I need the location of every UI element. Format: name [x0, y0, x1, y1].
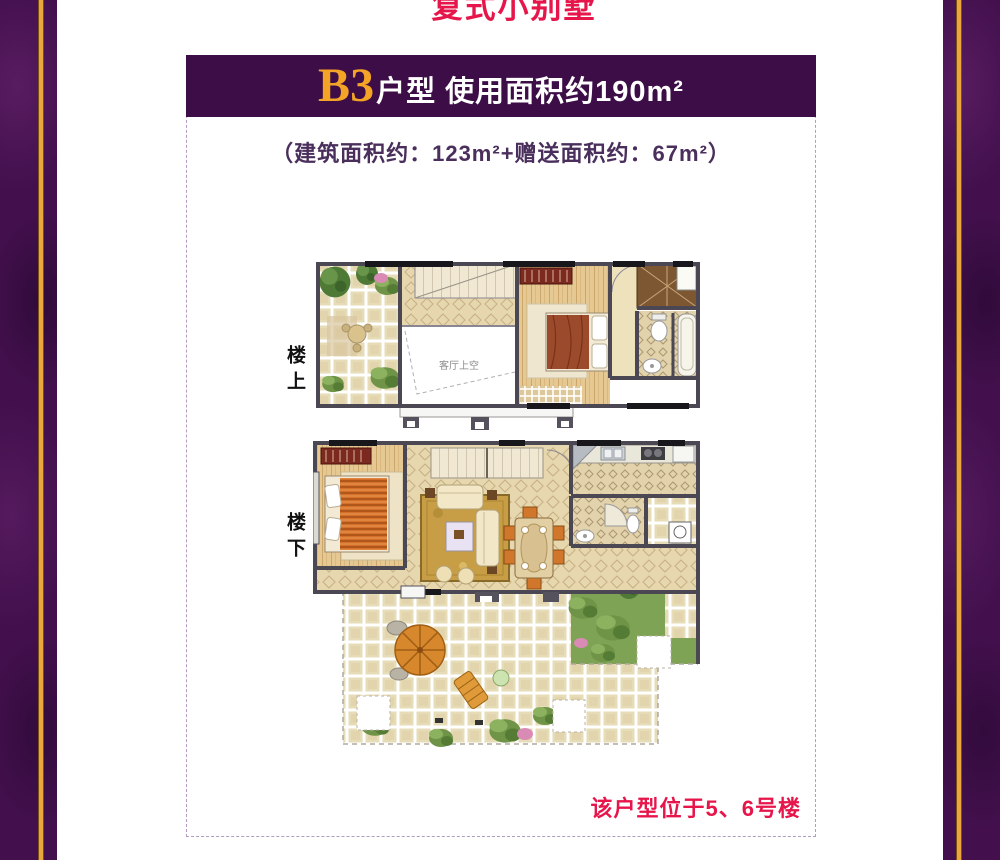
toilet-icon — [651, 321, 667, 341]
unit-header-bar: B3 户型 使用面积约190m² — [186, 55, 816, 117]
unit-code: B3 — [318, 55, 374, 117]
unit-info-panel: B3 户型 使用面积约190m² （建筑面积约：123m²+赠送面积约：67m²… — [186, 55, 816, 837]
fridge-icon — [673, 446, 694, 462]
lower-bed — [325, 476, 389, 552]
lower-bathroom — [573, 498, 643, 546]
sofa-icon — [476, 510, 499, 566]
umbrella-icon — [395, 625, 445, 675]
gold-stripe-right — [956, 0, 962, 860]
area-breakdown: （建筑面积约：123m²+赠送面积约：67m²） — [187, 136, 815, 168]
lower-floor-label: 楼下 — [281, 512, 308, 564]
upper-stair-hall — [400, 264, 517, 326]
void-label: 客厅上空 — [439, 359, 479, 372]
upper-bay-window-rail — [400, 406, 573, 430]
living-room — [421, 485, 509, 584]
building-location-note: 该户型位于5、6号楼 — [591, 791, 801, 823]
lower-floor-plan — [313, 438, 703, 768]
upper-floor-plan: 客厅上空 — [315, 256, 700, 436]
upper-bed — [546, 313, 609, 371]
upper-garden-terrace — [318, 263, 400, 406]
upper-bathroom — [637, 311, 698, 378]
lower-stairs — [431, 448, 543, 478]
upper-closet — [637, 264, 698, 308]
page-title: 复式小别墅 — [0, 0, 1000, 27]
washer-icon — [669, 522, 691, 543]
toilet-icon — [627, 515, 639, 533]
living-room-void: 客厅上空 — [400, 326, 517, 406]
unit-area-title: 户型 使用面积约190m² — [376, 68, 684, 110]
brochure-page: 复式小别墅 B3 户型 使用面积约190m² （建筑面积约：123m²+赠送面积… — [0, 0, 1000, 860]
sofa-icon — [437, 485, 483, 509]
side-table-icon — [487, 490, 497, 500]
utility-room — [646, 498, 696, 546]
left-border-decoration — [0, 0, 57, 860]
side-table-icon — [425, 488, 435, 498]
gold-stripe-left — [38, 0, 44, 860]
kitchen — [573, 445, 696, 494]
right-border-decoration — [943, 0, 1000, 860]
lower-bedroom — [317, 445, 405, 568]
upper-bedroom — [517, 264, 610, 406]
upper-corridor — [610, 264, 639, 378]
upper-floor-label: 楼上 — [281, 345, 308, 397]
